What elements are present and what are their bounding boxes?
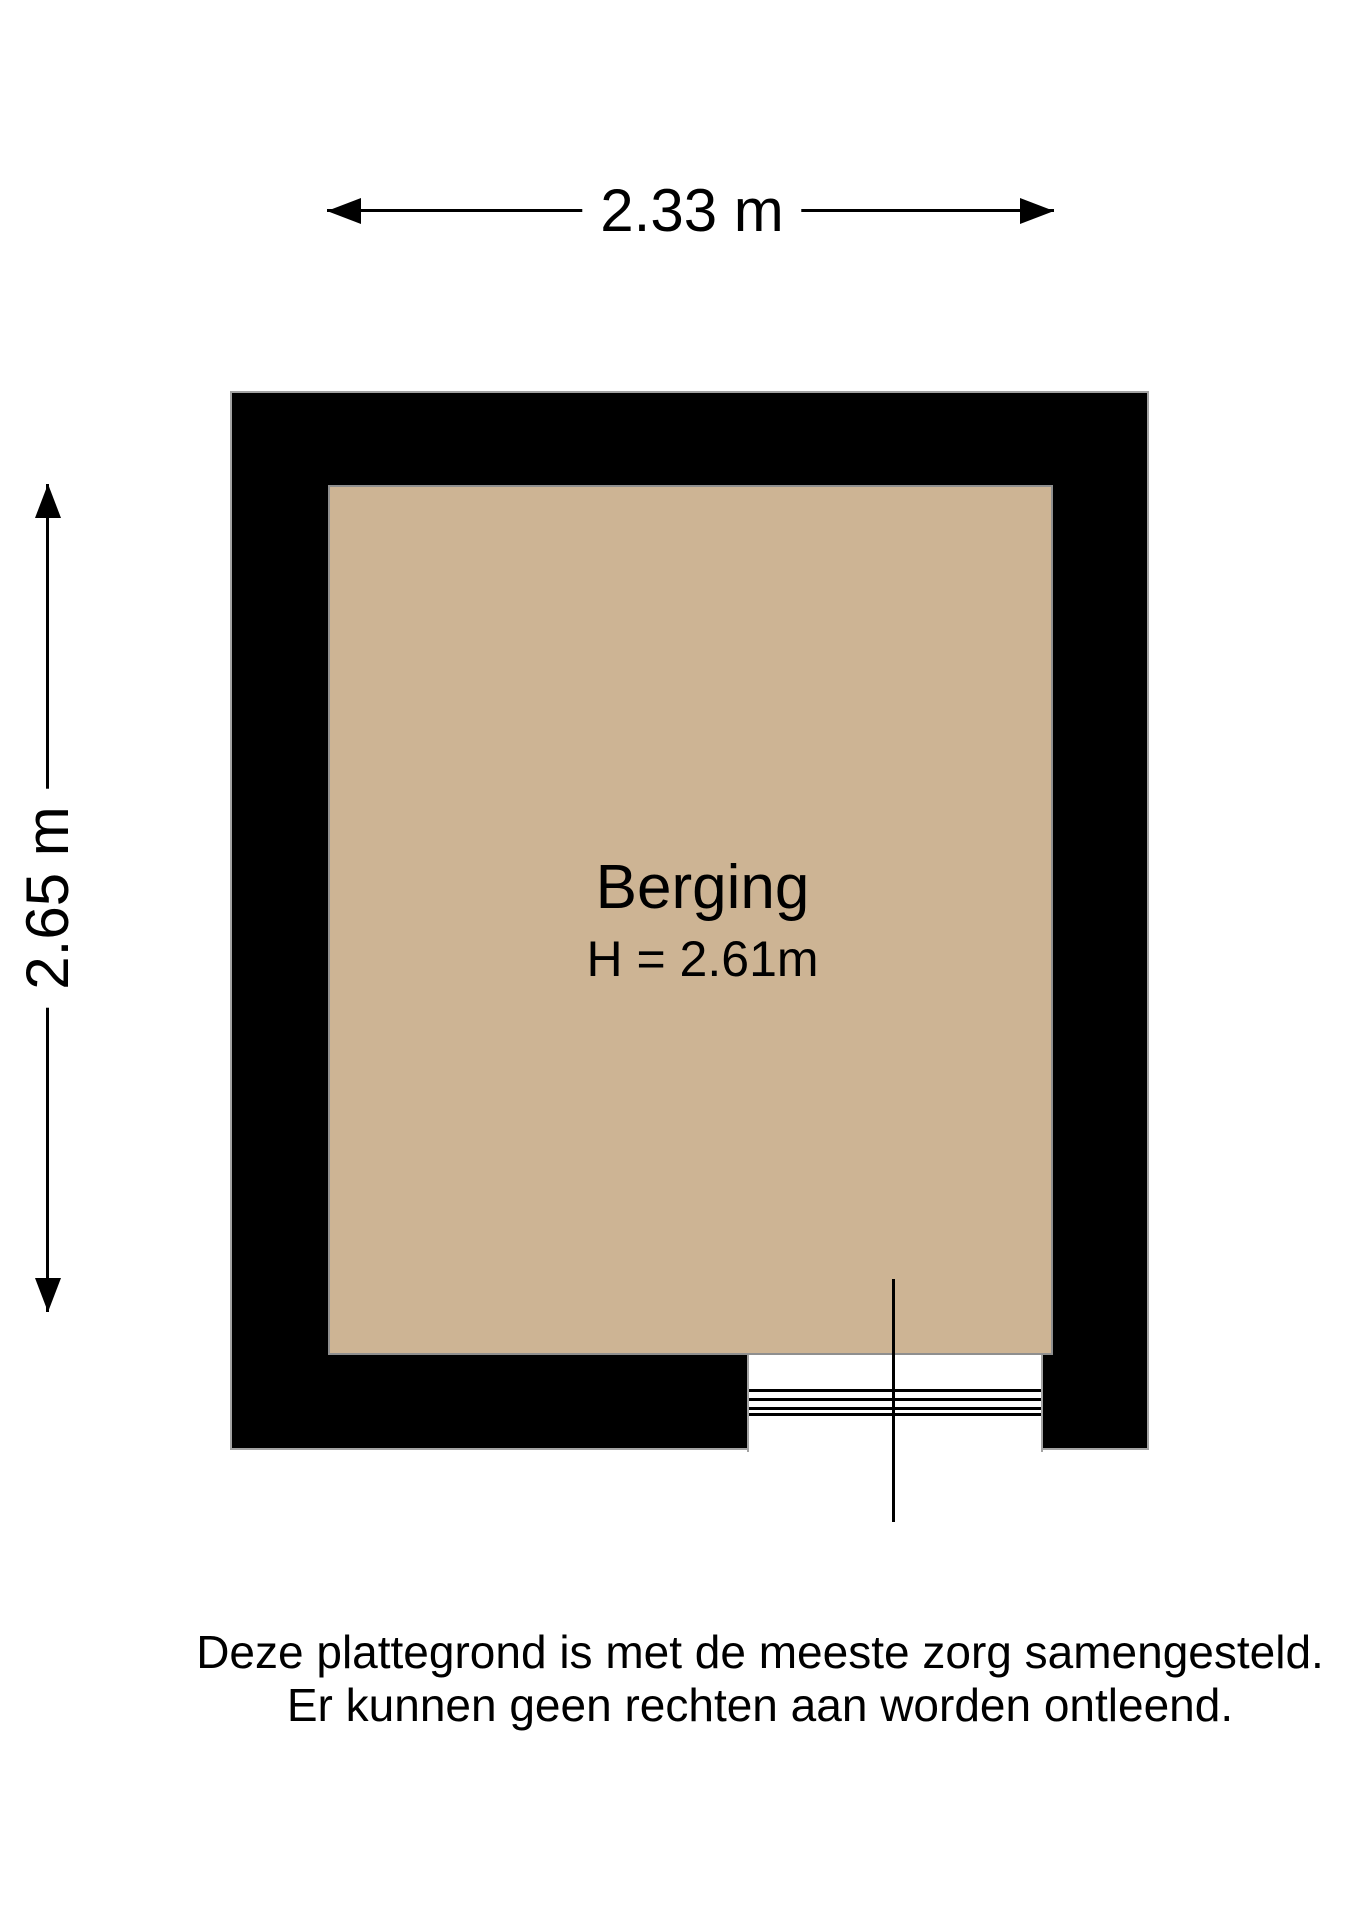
arrow-left-icon [327,198,361,224]
width-dimension-label: 2.33 m [582,175,801,247]
threshold-line [749,1389,1041,1392]
arrow-up-icon [35,484,61,518]
disclaimer: Deze plattegrond is met de meeste zorg s… [196,1626,1324,1733]
room-height-label: H = 2.61m [340,931,1065,989]
disclaimer-line-2: Er kunnen geen rechten aan worden ontlee… [196,1679,1324,1732]
door-line [892,1279,895,1522]
threshold-line [749,1407,1041,1410]
arrow-right-icon [1020,198,1054,224]
threshold-line [749,1413,1041,1416]
room-name-label: Berging [340,852,1065,923]
disclaimer-line-1: Deze plattegrond is met de meeste zorg s… [196,1626,1324,1679]
arrow-down-icon [35,1278,61,1312]
door-opening [747,1355,1043,1452]
threshold-line [749,1398,1041,1401]
height-dimension-label: 2.65 m [12,788,84,1007]
floorplan-canvas: 2.33 m 2.65 m Berging H = 2.61m Deze pla… [0,0,1358,1920]
room-label: Berging H = 2.61m [340,852,1065,989]
